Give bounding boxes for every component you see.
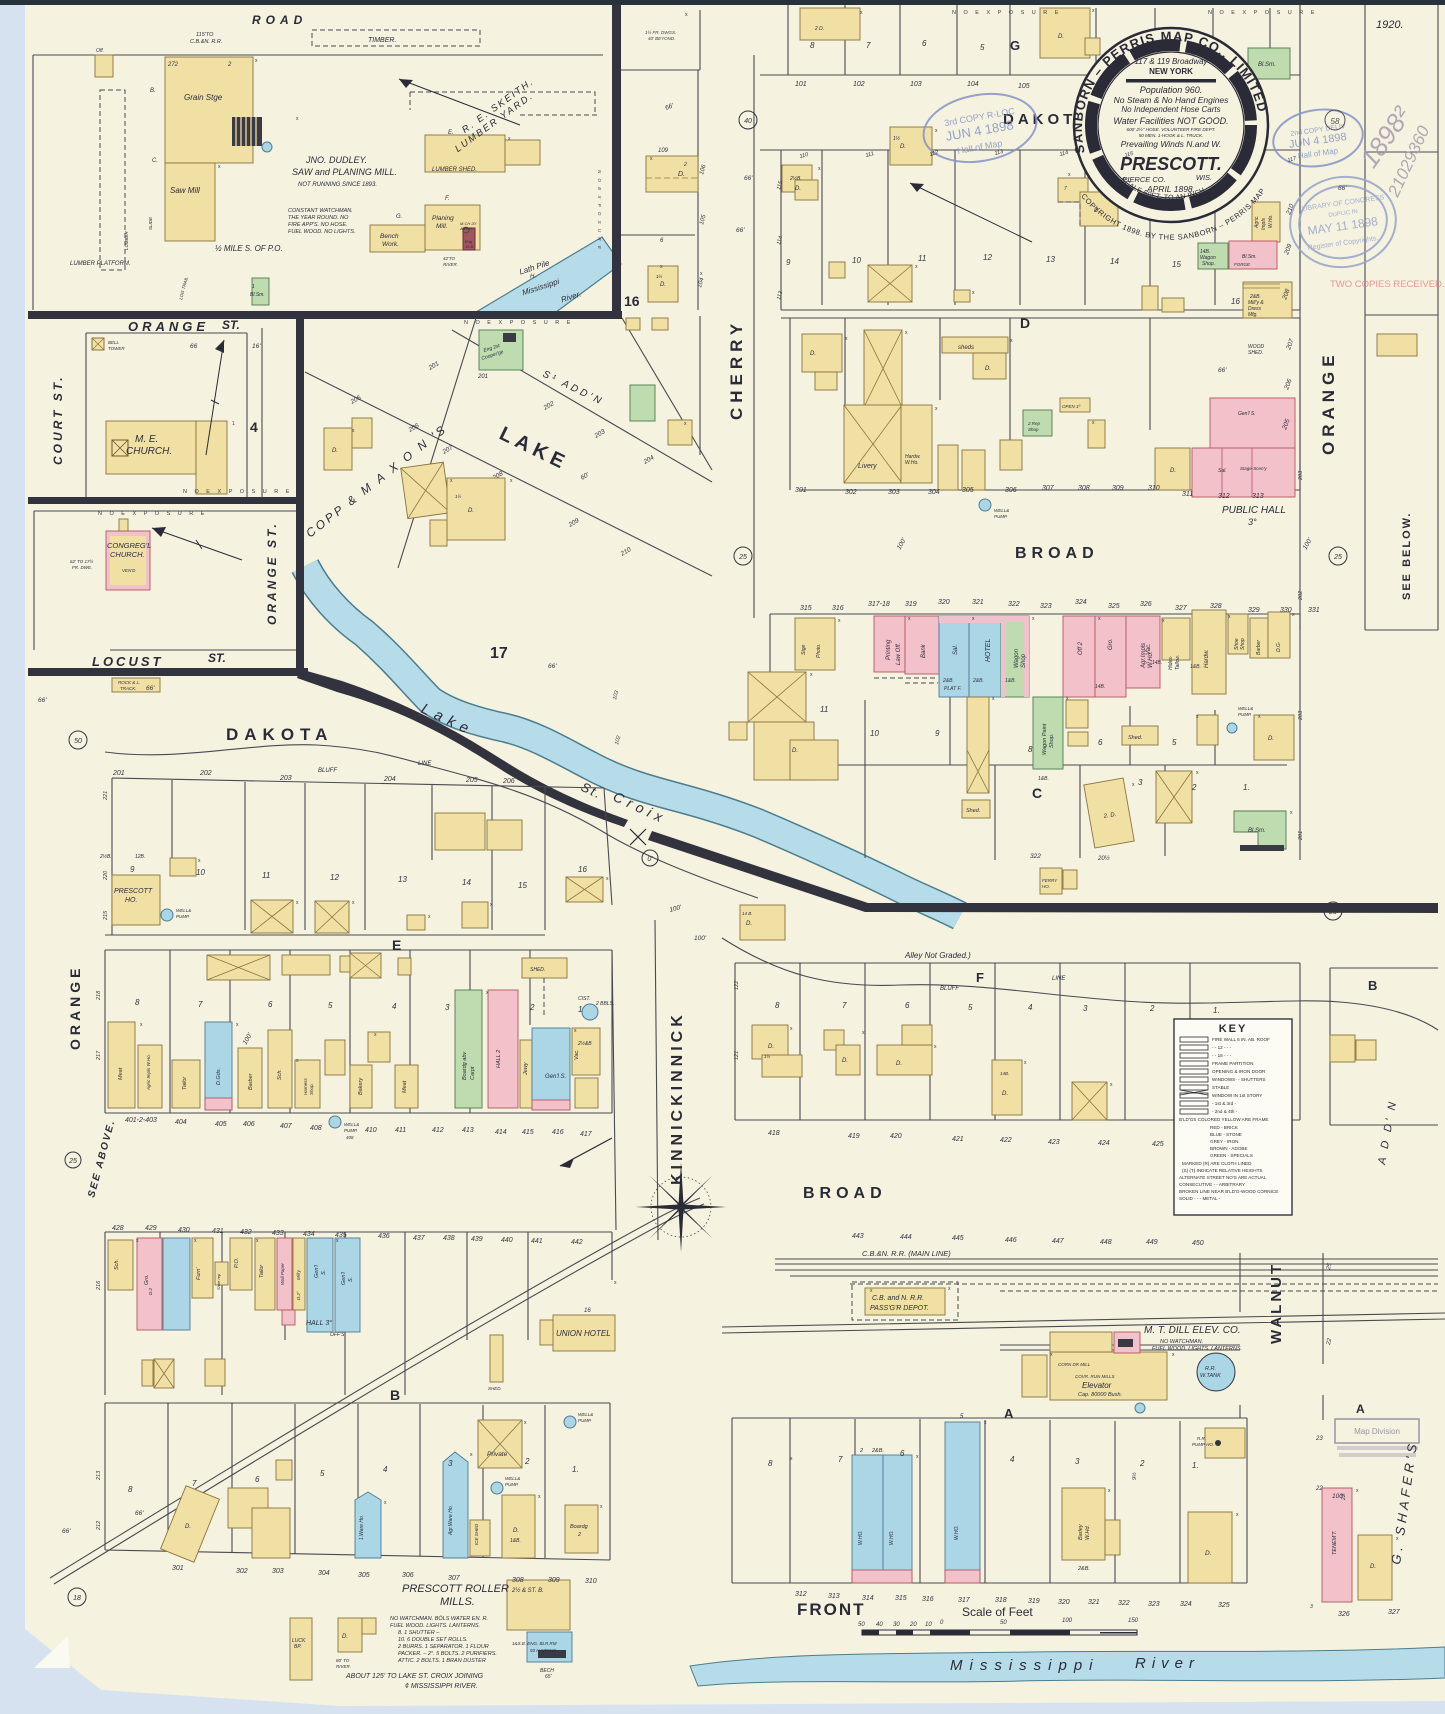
svg-text:322: 322 bbox=[1030, 853, 1041, 860]
svg-text:Shop: Shop bbox=[1021, 653, 1027, 668]
svg-text:W.Ho.: W.Ho. bbox=[905, 460, 919, 466]
svg-text:BLUE - STONE: BLUE - STONE bbox=[1210, 1132, 1242, 1137]
svg-text:11: 11 bbox=[820, 705, 828, 714]
svg-text:No Steam & No Hand Engines: No Steam & No Hand Engines bbox=[1114, 95, 1230, 105]
svg-text:Saw Mill: Saw Mill bbox=[170, 186, 200, 195]
svg-text:FUEL WOOD. NO LIGHTS.: FUEL WOOD. NO LIGHTS. bbox=[288, 229, 355, 235]
svg-text:3: 3 bbox=[1310, 1604, 1313, 1610]
svg-text:1.: 1. bbox=[1243, 783, 1250, 792]
svg-text:8: 8 bbox=[775, 1001, 780, 1010]
svg-text:Mfg.: Mfg. bbox=[1248, 312, 1258, 318]
svg-text:15 B.: 15 B. bbox=[465, 244, 474, 249]
svg-text:62' TO 17½: 62' TO 17½ bbox=[70, 558, 94, 564]
svg-text:WELL&: WELL& bbox=[505, 1476, 520, 1481]
svg-text:2: 2 bbox=[529, 1003, 535, 1012]
svg-text:407: 407 bbox=[280, 1123, 293, 1130]
svg-text:Shop.: Shop. bbox=[309, 1083, 314, 1095]
svg-text:THE YEAR ROUND. NO: THE YEAR ROUND. NO bbox=[288, 215, 349, 221]
svg-text:431: 431 bbox=[212, 1228, 224, 1235]
svg-text:Wagon: Wagon bbox=[1014, 648, 1020, 668]
svg-text:D.: D. bbox=[768, 1044, 774, 1050]
svg-text:Hides·: Hides· bbox=[1168, 655, 1174, 670]
svg-text:415: 415 bbox=[522, 1129, 534, 1136]
svg-text:Agric Impls W.Ho.: Agric Impls W.Ho. bbox=[146, 1054, 151, 1091]
svg-text:2&B.: 2&B. bbox=[1077, 1566, 1090, 1572]
svg-text:202: 202 bbox=[1298, 591, 1304, 601]
svg-text:Gro.: Gro. bbox=[1108, 638, 1114, 650]
svg-text:Bl.Sm.: Bl.Sm. bbox=[1248, 828, 1266, 834]
svg-text:UNION HOTEL: UNION HOTEL bbox=[556, 1329, 611, 1338]
svg-text:1.: 1. bbox=[1192, 1461, 1199, 1470]
svg-text:S.: S. bbox=[321, 1270, 327, 1275]
svg-text:PRESCOTT: PRESCOTT bbox=[114, 888, 153, 895]
svg-text:100: 100 bbox=[1062, 1618, 1073, 1624]
svg-text:R.R.: R.R. bbox=[1197, 1436, 1206, 1441]
svg-text:M. E.: M. E. bbox=[135, 434, 158, 445]
svg-text:WIS.: WIS. bbox=[1196, 173, 1212, 182]
svg-text:WELL&: WELL& bbox=[1238, 706, 1253, 711]
svg-text:PIERCE CO.: PIERCE CO. bbox=[1122, 175, 1165, 184]
svg-text:LUMBER: LUMBER bbox=[124, 230, 129, 250]
svg-text:HO.: HO. bbox=[1042, 884, 1050, 889]
svg-text:6: 6 bbox=[255, 1475, 260, 1484]
svg-text:313: 313 bbox=[1252, 493, 1264, 500]
svg-text:BROAD: BROAD bbox=[803, 1185, 887, 1202]
svg-text:Shed.: Shed. bbox=[1128, 735, 1142, 741]
svg-text:5: 5 bbox=[320, 1469, 325, 1478]
svg-text:423: 423 bbox=[1048, 1139, 1060, 1146]
svg-text:Agric.: Agric. bbox=[1254, 215, 1260, 229]
svg-text:C.: C. bbox=[152, 158, 158, 164]
svg-text:203: 203 bbox=[1298, 470, 1304, 481]
svg-text:105: 105 bbox=[1018, 83, 1030, 90]
svg-text:W.HO.: W.HO. bbox=[954, 1525, 960, 1540]
svg-text:GREY - IRON: GREY - IRON bbox=[1210, 1139, 1239, 1144]
svg-text:F: F bbox=[976, 970, 984, 985]
svg-text:D: D bbox=[1020, 315, 1030, 331]
svg-text:322: 322 bbox=[1008, 601, 1020, 608]
svg-text:SHED.: SHED. bbox=[488, 1386, 502, 1391]
svg-text:309: 309 bbox=[1112, 485, 1124, 492]
svg-text:442: 442 bbox=[571, 1239, 583, 1246]
svg-text:C.B. and N. R.R.: C.B. and N. R.R. bbox=[872, 1295, 924, 1302]
svg-text:50 H STONE: 50 H STONE bbox=[530, 1648, 557, 1653]
svg-text:Sal.: Sal. bbox=[953, 645, 959, 655]
svg-text:N O E X P O S U R E: N O E X P O S U R E bbox=[1208, 10, 1317, 16]
svg-text:319: 319 bbox=[1028, 1598, 1040, 1605]
svg-text:50 MEN. 1-HOOK & L. TRUCK.: 50 MEN. 1-HOOK & L. TRUCK. bbox=[1139, 133, 1204, 138]
svg-text:22: 22 bbox=[1315, 1486, 1323, 1492]
svg-text:2 BBLS.: 2 BBLS. bbox=[595, 1001, 614, 1007]
svg-text:Alley Not Graded.): Alley Not Graded.) bbox=[904, 951, 971, 960]
svg-text:303: 303 bbox=[888, 489, 900, 496]
svg-text:101: 101 bbox=[795, 81, 807, 88]
svg-text:NO WATCHMAN.: NO WATCHMAN. bbox=[1160, 1339, 1203, 1345]
svg-text:102: 102 bbox=[853, 81, 865, 88]
svg-text:425: 425 bbox=[1152, 1141, 1164, 1148]
svg-text:- 1st & 3rd -: - 1st & 3rd - bbox=[1212, 1101, 1236, 1106]
svg-text:301: 301 bbox=[795, 487, 807, 494]
svg-text:PRESCOTT ROLLER: PRESCOTT ROLLER bbox=[402, 1583, 509, 1595]
svg-text:W.TANK: W.TANK bbox=[1200, 1373, 1221, 1379]
svg-text:1: 1 bbox=[232, 421, 235, 427]
svg-text:201: 201 bbox=[477, 374, 488, 380]
svg-text:411: 411 bbox=[395, 1127, 406, 1134]
svg-text:Shoe rep: Shoe rep bbox=[216, 1273, 221, 1290]
svg-text:Sch.: Sch. bbox=[277, 1069, 283, 1080]
svg-text:8: 8 bbox=[128, 1485, 133, 1494]
svg-text:WELL&: WELL& bbox=[994, 508, 1009, 513]
svg-text:104: 104 bbox=[967, 81, 979, 88]
svg-text:COVR. RUN MILLS: COVR. RUN MILLS bbox=[1075, 1374, 1115, 1379]
svg-text:1½ FR. DWGS.: 1½ FR. DWGS. bbox=[645, 29, 676, 35]
svg-text:2: 2 bbox=[1149, 1004, 1155, 1013]
svg-text:3: 3 bbox=[448, 1459, 453, 1468]
svg-text:424: 424 bbox=[1098, 1140, 1110, 1147]
svg-text:25: 25 bbox=[738, 554, 747, 561]
svg-text:306: 306 bbox=[402, 1572, 414, 1579]
svg-text:Bl.Sm.: Bl.Sm. bbox=[250, 292, 265, 298]
svg-text:322: 322 bbox=[1118, 1600, 1130, 1607]
svg-text:8. 1 SHUTTER –: 8. 1 SHUTTER – bbox=[398, 1630, 440, 1636]
svg-text:Meat: Meat bbox=[118, 1067, 124, 1080]
svg-text:3: 3 bbox=[1075, 1457, 1080, 1466]
svg-text:D.: D. bbox=[660, 282, 666, 288]
svg-text:RIVER.: RIVER. bbox=[443, 262, 458, 267]
svg-text:3°: 3° bbox=[1248, 517, 1257, 527]
svg-text:PUMP.: PUMP. bbox=[994, 514, 1008, 519]
svg-text:413: 413 bbox=[462, 1127, 474, 1134]
svg-text:421: 421 bbox=[952, 1136, 964, 1143]
svg-text:CORN DR MILL: CORN DR MILL bbox=[1058, 1362, 1091, 1367]
svg-text:326: 326 bbox=[1338, 1611, 1350, 1618]
svg-text:VEN'D: VEN'D bbox=[122, 568, 136, 573]
svg-text:RED - BRICK: RED - BRICK bbox=[1210, 1125, 1239, 1130]
svg-text:D.: D. bbox=[985, 366, 991, 372]
svg-text:Carpt: Carpt bbox=[470, 1066, 476, 1080]
svg-text:WINDOW IN 1st STORY: WINDOW IN 1st STORY bbox=[1212, 1093, 1262, 1098]
svg-text:APRIL 1898.: APRIL 1898. bbox=[1146, 184, 1195, 194]
svg-text:HALL 3°: HALL 3° bbox=[306, 1319, 332, 1327]
svg-text:220: 220 bbox=[103, 870, 109, 881]
svg-text:C.B.&N. R.R.: C.B.&N. R.R. bbox=[190, 39, 222, 45]
svg-text:16: 16 bbox=[578, 865, 587, 874]
svg-text:sheds: sheds bbox=[958, 345, 974, 351]
svg-text:6: 6 bbox=[268, 1000, 273, 1009]
svg-text:SHED.: SHED. bbox=[530, 967, 545, 973]
svg-text:Gen'l: Gen'l bbox=[314, 1265, 320, 1278]
svg-text:9½: 9½ bbox=[1131, 1472, 1138, 1480]
svg-text:STABLE: STABLE bbox=[1212, 1085, 1229, 1090]
svg-text:WALNUT: WALNUT bbox=[1268, 1262, 1285, 1344]
svg-text:324: 324 bbox=[1075, 599, 1087, 606]
svg-text:109: 109 bbox=[658, 148, 669, 154]
svg-text:D.: D. bbox=[513, 1528, 519, 1534]
svg-text:1: 1 bbox=[252, 284, 255, 290]
svg-text:317-18: 317-18 bbox=[868, 601, 890, 608]
svg-text:Elevator: Elevator bbox=[1082, 1381, 1112, 1390]
svg-text:D.: D. bbox=[842, 1058, 848, 1064]
svg-text:LOCUST: LOCUST bbox=[92, 654, 163, 669]
svg-text:324: 324 bbox=[1180, 1601, 1192, 1608]
svg-text:304: 304 bbox=[318, 1570, 330, 1577]
svg-text:401-2-403: 401-2-403 bbox=[125, 1117, 157, 1124]
svg-text:420: 420 bbox=[890, 1133, 902, 1140]
svg-text:N O E X P O S U R E: N O E X P O S U R E bbox=[952, 10, 1061, 16]
svg-text:18: 18 bbox=[73, 1595, 81, 1602]
svg-text:OPENING & IRON DOOR: OPENING & IRON DOOR bbox=[1212, 1069, 1266, 1074]
svg-text:TOWER: TOWER bbox=[108, 346, 125, 351]
svg-text:Private: Private bbox=[487, 1451, 508, 1458]
svg-text:414: 414 bbox=[495, 1129, 507, 1136]
svg-text:205: 205 bbox=[465, 777, 478, 784]
svg-text:Mill.: Mill. bbox=[436, 223, 448, 230]
svg-text:121: 121 bbox=[734, 1051, 740, 1060]
svg-text:330: 330 bbox=[1280, 607, 1292, 614]
svg-text:BP.: BP. bbox=[294, 1644, 301, 1650]
svg-text:FRAME PARTITION: FRAME PARTITION bbox=[1212, 1061, 1253, 1066]
svg-text:D.2: D.2 bbox=[148, 1288, 153, 1296]
svg-text:CONGREG'L: CONGREG'L bbox=[107, 541, 151, 550]
svg-text:66': 66' bbox=[146, 685, 155, 692]
svg-text:117 & 119 Broadway: 117 & 119 Broadway bbox=[1134, 57, 1208, 66]
svg-text:OPEN 1º: OPEN 1º bbox=[1062, 404, 1081, 409]
svg-text:329: 329 bbox=[1248, 607, 1260, 614]
svg-text:2: 2 bbox=[683, 162, 687, 168]
svg-text:FIRE WALL 6 IN. AB. ROOF: FIRE WALL 6 IN. AB. ROOF bbox=[1212, 1037, 1270, 1042]
svg-text:G: G bbox=[1010, 38, 1020, 53]
svg-text:12: 12 bbox=[983, 253, 992, 262]
svg-text:8: 8 bbox=[135, 998, 140, 1007]
svg-text:3: 3 bbox=[1083, 1004, 1088, 1013]
svg-text:417: 417 bbox=[580, 1131, 593, 1138]
svg-text:Tallow.: Tallow. bbox=[1175, 655, 1181, 670]
svg-text:66': 66' bbox=[38, 697, 47, 704]
svg-text:66': 66' bbox=[1338, 185, 1347, 192]
svg-text:PLAT F.: PLAT F. bbox=[944, 686, 962, 692]
svg-text:50: 50 bbox=[74, 738, 82, 745]
svg-text:326: 326 bbox=[1140, 601, 1152, 608]
svg-text:2½B.: 2½B. bbox=[789, 175, 802, 182]
svg-text:408: 408 bbox=[310, 1125, 322, 1132]
svg-text:25: 25 bbox=[68, 1158, 77, 1165]
svg-text:6: 6 bbox=[922, 39, 927, 48]
svg-text:2: 2 bbox=[227, 62, 232, 68]
svg-text:FIRE APP'S. NO HOSE.: FIRE APP'S. NO HOSE. bbox=[288, 222, 348, 228]
svg-text:GREEN - SPECIALS: GREEN - SPECIALS bbox=[1210, 1153, 1253, 1158]
svg-text:445: 445 bbox=[952, 1235, 964, 1242]
svg-text:WINDOWS· - SHUTTERS: WINDOWS· - SHUTTERS bbox=[1212, 1077, 1266, 1082]
svg-text:DAKOTA: DAKOTA bbox=[226, 725, 333, 744]
svg-text:2½&B: 2½&B bbox=[577, 1040, 592, 1047]
svg-text:Photo.: Photo. bbox=[816, 644, 822, 658]
svg-text:446: 446 bbox=[1005, 1237, 1017, 1244]
svg-text:1½: 1½ bbox=[764, 1053, 771, 1059]
svg-text:42'TO: 42'TO bbox=[443, 256, 456, 261]
svg-text:D.: D. bbox=[1170, 468, 1176, 474]
svg-text:66': 66' bbox=[548, 663, 557, 670]
svg-text:150: 150 bbox=[1128, 1618, 1139, 1624]
svg-text:CONSECUTIVE - - ARBITRARY: CONSECUTIVE - - ARBITRARY bbox=[1179, 1182, 1245, 1187]
svg-text:W.HO.: W.HO. bbox=[889, 1530, 895, 1545]
svg-text:4: 4 bbox=[392, 1002, 397, 1011]
svg-text:50: 50 bbox=[858, 1622, 865, 1628]
svg-text:317: 317 bbox=[958, 1597, 971, 1604]
svg-text:LUMBER PLATFORM.: LUMBER PLATFORM. bbox=[70, 261, 131, 267]
svg-text:N O E X P O S U R E: N O E X P O S U R E bbox=[597, 170, 602, 251]
svg-text:307: 307 bbox=[1042, 485, 1055, 492]
svg-text:12B.: 12B. bbox=[135, 854, 145, 860]
svg-text:439: 439 bbox=[471, 1236, 483, 1243]
svg-text:22: 22 bbox=[1341, 1494, 1347, 1501]
svg-text:D.: D. bbox=[896, 1061, 902, 1067]
svg-text:440: 440 bbox=[501, 1237, 513, 1244]
svg-text:1.: 1. bbox=[1213, 1006, 1220, 1015]
svg-text:Mississippi: Mississippi bbox=[950, 1657, 1100, 1674]
svg-text:B.: B. bbox=[150, 88, 156, 94]
svg-text:Barley: Barley bbox=[1078, 1523, 1084, 1540]
svg-text:Vac.: Vac. bbox=[1146, 643, 1152, 655]
svg-text:5: 5 bbox=[968, 1003, 973, 1012]
svg-text:BELL: BELL bbox=[108, 340, 120, 345]
svg-text:1&B.: 1&B. bbox=[1038, 776, 1049, 782]
svg-text:9: 9 bbox=[935, 729, 940, 738]
svg-text:308: 308 bbox=[1078, 485, 1090, 492]
svg-text:2&B.: 2&B. bbox=[942, 678, 954, 684]
svg-text:Agr.Ware Ho.: Agr.Ware Ho. bbox=[448, 1505, 454, 1536]
svg-text:16': 16' bbox=[252, 343, 261, 350]
svg-text:NEW YORK: NEW YORK bbox=[1149, 67, 1193, 76]
svg-text:Cap. 80000 Bush.: Cap. 80000 Bush. bbox=[1078, 1392, 1122, 1398]
svg-text:Bl.Sm.: Bl.Sm. bbox=[1242, 254, 1257, 260]
svg-text:410: 410 bbox=[365, 1127, 377, 1134]
svg-text:Bench: Bench bbox=[380, 233, 399, 240]
svg-text:N O E X P O S U R E: N O E X P O S U R E bbox=[98, 511, 207, 517]
svg-text:Shop.: Shop. bbox=[1202, 261, 1215, 267]
svg-text:7: 7 bbox=[838, 1455, 843, 1464]
svg-text:5: 5 bbox=[980, 43, 985, 52]
svg-text:HO.: HO. bbox=[125, 897, 138, 904]
svg-text:MILLS.: MILLS. bbox=[440, 1596, 475, 1608]
svg-text:NOT RUNNING SINCE 1893.: NOT RUNNING SINCE 1893. bbox=[298, 182, 377, 188]
svg-text:2: 2 bbox=[577, 1532, 581, 1538]
svg-text:Gen'l S.: Gen'l S. bbox=[545, 1074, 566, 1080]
svg-text:412: 412 bbox=[432, 1127, 444, 1134]
svg-text:D.: D. bbox=[332, 448, 338, 454]
svg-text:Sal.: Sal. bbox=[1218, 468, 1227, 474]
svg-text:Tailor: Tailor bbox=[182, 1076, 188, 1090]
svg-text:TENEM'T.: TENEM'T. bbox=[1332, 1530, 1338, 1555]
svg-text:Grain Stge: Grain Stge bbox=[184, 93, 223, 102]
svg-text:ROAD: ROAD bbox=[252, 13, 307, 27]
svg-text:RIVER.: RIVER. bbox=[336, 1664, 351, 1669]
svg-text:309: 309 bbox=[548, 1577, 560, 1584]
svg-text:25: 25 bbox=[1333, 554, 1342, 561]
svg-text:CIST.: CIST. bbox=[578, 996, 590, 1002]
svg-text:H.: H. bbox=[530, 274, 536, 280]
svg-text:PUMP HO.: PUMP HO. bbox=[1192, 1442, 1214, 1447]
svg-text:D.: D. bbox=[900, 144, 906, 150]
svg-text:14B.: 14B. bbox=[1152, 660, 1162, 666]
svg-text:302: 302 bbox=[236, 1568, 248, 1575]
svg-text:10: 10 bbox=[852, 256, 861, 265]
svg-text:327: 327 bbox=[1175, 605, 1188, 612]
svg-text:W.HO.: W.HO. bbox=[858, 1530, 864, 1545]
svg-text:PUMP.: PUMP. bbox=[344, 1128, 358, 1133]
svg-text:303: 303 bbox=[272, 1568, 284, 1575]
svg-text:BROKEN LINE NEAR B'LD'G-WOOD C: BROKEN LINE NEAR B'LD'G-WOOD CORNICE bbox=[1179, 1189, 1278, 1194]
svg-text:ICE SHED: ICE SHED bbox=[474, 1523, 479, 1545]
svg-text:7: 7 bbox=[1064, 186, 1067, 192]
svg-text:206: 206 bbox=[502, 778, 515, 785]
svg-text:10: 10 bbox=[925, 1622, 932, 1628]
svg-text:1½: 1½ bbox=[656, 273, 663, 279]
svg-text:W.Hd.: W.Hd. bbox=[1085, 1525, 1091, 1540]
svg-text:323: 323 bbox=[1040, 603, 1052, 610]
svg-text:323: 323 bbox=[1148, 1601, 1160, 1608]
svg-text:1½: 1½ bbox=[455, 493, 462, 499]
svg-text:Tailor: Tailor bbox=[259, 1264, 265, 1278]
svg-text:212: 212 bbox=[96, 1521, 102, 1531]
svg-text:321: 321 bbox=[972, 599, 984, 606]
svg-text:217: 217 bbox=[96, 1050, 102, 1061]
svg-text:315: 315 bbox=[895, 1595, 907, 1602]
svg-text:M. T. DILL ELEV. CO.: M. T. DILL ELEV. CO. bbox=[1144, 1325, 1241, 1336]
svg-text:429: 429 bbox=[145, 1225, 157, 1232]
svg-text:FUEL WOOD. LIGHTS. LANTERNS.: FUEL WOOD. LIGHTS. LANTERNS. bbox=[1152, 1346, 1242, 1352]
svg-text:Shop: Shop bbox=[1028, 427, 1039, 432]
svg-text:12: 12 bbox=[330, 873, 339, 882]
svg-text:433: 433 bbox=[272, 1230, 284, 1237]
svg-text:3: 3 bbox=[445, 1003, 450, 1012]
svg-text:307: 307 bbox=[448, 1575, 461, 1582]
svg-text:58: 58 bbox=[1331, 117, 1340, 126]
svg-text:10: 10 bbox=[196, 868, 205, 877]
svg-text:447: 447 bbox=[1052, 1238, 1065, 1245]
svg-text:1&B.: 1&B. bbox=[1005, 678, 1016, 684]
svg-text:9: 9 bbox=[786, 258, 791, 267]
svg-text:9: 9 bbox=[130, 865, 135, 874]
svg-text:14B.: 14B. bbox=[1095, 684, 1105, 690]
svg-text:1&B.: 1&B. bbox=[1190, 664, 1201, 670]
svg-text:122: 122 bbox=[734, 981, 740, 990]
svg-text:2: 2 bbox=[1139, 1459, 1145, 1468]
svg-text:Law Off.: Law Off. bbox=[896, 643, 902, 665]
svg-text:D.Gds.: D.Gds. bbox=[216, 1068, 222, 1085]
svg-text:HOTEL: HOTEL bbox=[985, 639, 992, 662]
svg-text:D.: D. bbox=[792, 748, 798, 754]
svg-text:40' BEYOND.: 40' BEYOND. bbox=[648, 36, 675, 41]
svg-text:Shed.: Shed. bbox=[966, 808, 980, 814]
svg-text:66: 66 bbox=[190, 343, 198, 350]
svg-text:Meat: Meat bbox=[402, 1080, 408, 1093]
svg-text:15: 15 bbox=[518, 881, 527, 890]
svg-text:D.: D. bbox=[1268, 736, 1274, 742]
svg-text:40: 40 bbox=[744, 118, 752, 125]
svg-text:FRONT: FRONT bbox=[797, 1600, 866, 1619]
svg-text:6: 6 bbox=[905, 1001, 910, 1010]
svg-text:WELL&: WELL& bbox=[344, 1122, 359, 1127]
svg-text:315: 315 bbox=[800, 605, 812, 612]
svg-text:321: 321 bbox=[1088, 1599, 1100, 1606]
svg-text:Population 960.: Population 960. bbox=[1140, 85, 1203, 95]
svg-text:272: 272 bbox=[167, 62, 179, 68]
svg-text:Gen'l: Gen'l bbox=[341, 1272, 347, 1285]
svg-text:BROWN - ADOBE: BROWN - ADOBE bbox=[1210, 1146, 1248, 1151]
svg-text:PACKER. – 2°. 5 BOLTS. 2 PURI: PACKER. – 2°. 5 BOLTS. 2 PURIFIERS. bbox=[398, 1651, 497, 1657]
svg-text:310: 310 bbox=[1148, 485, 1160, 492]
svg-text:416: 416 bbox=[552, 1129, 564, 1136]
